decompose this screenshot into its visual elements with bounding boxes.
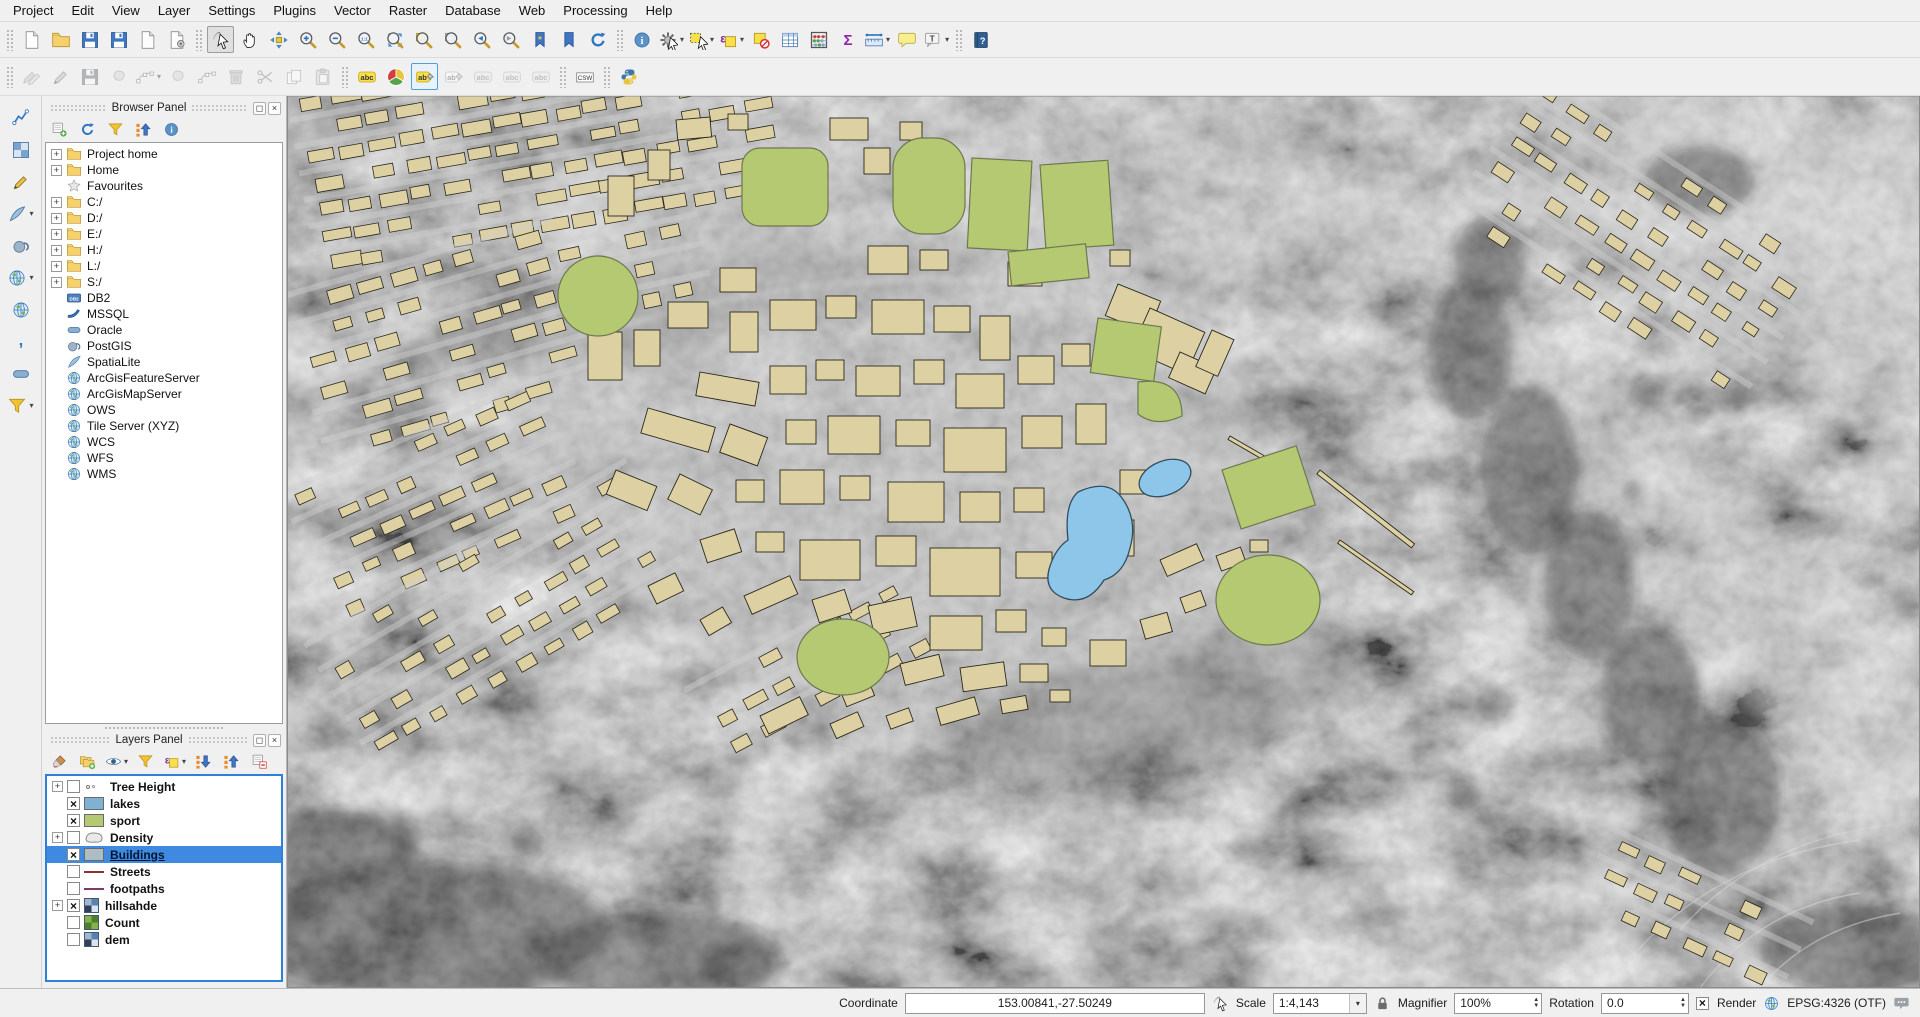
comma-icon <box>11 332 31 352</box>
menu-processing[interactable]: Processing <box>554 1 636 20</box>
floppy-icon <box>80 30 100 50</box>
layer-row-density[interactable]: +Density <box>47 829 281 846</box>
spin-arrows[interactable]: ▲▼ <box>1533 997 1541 1010</box>
layer-name-label: Buildings <box>110 848 165 862</box>
abcG-icon <box>502 67 522 87</box>
titlebar-texture <box>50 736 110 745</box>
dropdown-arrow-icon[interactable]: ▾ <box>886 35 890 44</box>
browser-item-e-[interactable]: +E:/ <box>46 226 282 242</box>
add-wms-layer-button[interactable]: ▾ <box>6 264 34 291</box>
abPin-icon <box>444 67 464 87</box>
float-panel-button[interactable]: ◻ <box>253 102 266 115</box>
expander-icon[interactable]: + <box>51 165 62 176</box>
blob-icon <box>109 67 129 87</box>
expander-icon[interactable]: + <box>51 261 62 272</box>
fill-swatch <box>84 797 104 810</box>
browser-item-h-[interactable]: +H:/ <box>46 242 282 258</box>
select-by-expression-button[interactable]: ▾ <box>717 26 745 53</box>
browser-item-label: ArcGisFeatureServer <box>87 371 200 385</box>
expander-icon[interactable]: + <box>51 197 62 208</box>
delete-selected-button[interactable] <box>222 63 249 90</box>
browser-item-c-[interactable]: +C:/ <box>46 194 282 210</box>
enable-properties-widget-button[interactable] <box>160 118 183 141</box>
line-swatch <box>84 871 104 873</box>
refresh-icon <box>588 30 608 50</box>
desel-icon <box>751 30 771 50</box>
textT-icon <box>923 30 943 50</box>
identify-features-button[interactable] <box>628 26 655 53</box>
copy-features-button[interactable] <box>280 63 307 90</box>
bookmark-icon <box>559 30 579 50</box>
move-icon <box>269 30 289 50</box>
folder-icon <box>66 194 82 210</box>
panel-splitter[interactable] <box>45 724 283 732</box>
new-bookmark-button[interactable] <box>526 26 553 53</box>
folder-icon <box>66 258 82 274</box>
toolbar-grip[interactable] <box>6 29 13 51</box>
pin-unpin-labels-button[interactable] <box>411 63 438 90</box>
menu-project[interactable]: Project <box>4 1 62 20</box>
bookmarknew-icon <box>530 30 550 50</box>
add-oracle-layer-button[interactable] <box>7 360 34 387</box>
measure-button[interactable]: ▾ <box>863 26 891 53</box>
star-icon <box>66 178 82 194</box>
refresh-browser-button[interactable] <box>76 118 99 141</box>
browser-item-label: H:/ <box>87 243 102 257</box>
dropdown-arrow-icon[interactable]: ▾ <box>182 757 186 766</box>
spatialite-icon <box>66 354 82 370</box>
browser-item-spatialite[interactable]: SpatiaLite <box>46 354 282 370</box>
postgis-icon <box>11 236 31 256</box>
scale-combobox[interactable]: 1:4,143 ▾ <box>1273 993 1367 1014</box>
collapse-all-layers-button[interactable] <box>220 750 243 773</box>
layers-panel: Layers Panel ◻ × ▾▾ +Tree Height×lakes×s… <box>45 732 283 982</box>
toolbar-grip[interactable] <box>341 66 348 88</box>
floppy-icon <box>80 67 100 87</box>
zoom-in-button[interactable] <box>294 26 321 53</box>
layer-name-label: footpaths <box>110 882 165 896</box>
magnifier-spinbox[interactable]: 100% ▲▼ <box>1454 993 1542 1014</box>
map-tips-button[interactable] <box>893 26 920 53</box>
browser-item-d-[interactable]: +D:/ <box>46 210 282 226</box>
expander-icon[interactable]: + <box>51 149 62 160</box>
spatialite-icon <box>7 204 27 224</box>
magnifier-label: Magnifier <box>1398 996 1447 1010</box>
folder-icon <box>66 226 82 242</box>
zoom-native-button[interactable] <box>352 26 379 53</box>
globe-icon <box>66 466 82 482</box>
globe-icon <box>66 386 82 402</box>
paste-icon <box>313 67 333 87</box>
menu-web[interactable]: Web <box>510 1 555 20</box>
help-icon <box>971 30 991 50</box>
layers-list: +Tree Height×lakes×sport+Density×Buildin… <box>45 774 283 982</box>
expand-all-button[interactable] <box>192 750 215 773</box>
layer-visibility-checkbox[interactable] <box>67 780 80 793</box>
rotation-label: Rotation <box>1549 996 1594 1010</box>
rotate-label-button[interactable] <box>498 63 525 90</box>
removelayer-icon <box>251 753 268 770</box>
highlight-pinned-labels-button[interactable] <box>440 63 467 90</box>
lock-scale-icon[interactable] <box>1374 995 1391 1012</box>
layer-visibility-checkbox[interactable]: × <box>67 814 80 827</box>
selrect-icon <box>688 30 708 50</box>
save-layer-edits-button[interactable] <box>76 63 103 90</box>
csw-icon <box>575 67 595 87</box>
treeup-icon <box>223 753 240 770</box>
zout-icon <box>327 30 347 50</box>
browser-item-label: DB2 <box>87 291 110 305</box>
layer-name-label: Tree Height <box>110 780 175 794</box>
refresh-icon <box>79 121 96 138</box>
titlebar-texture <box>50 104 107 113</box>
attrtable-icon <box>780 30 800 50</box>
main-area: ▾▾▾ Browser Panel ◻ × +Project home+Home… <box>0 96 1920 988</box>
zin-icon <box>298 30 318 50</box>
expander-icon[interactable]: + <box>51 245 62 256</box>
folder-icon <box>66 146 82 162</box>
new-shapefile-layer-button[interactable] <box>7 168 34 195</box>
toolbar-grip[interactable] <box>195 29 202 51</box>
dropdown-arrow-icon[interactable]: ▾ <box>945 35 949 44</box>
menu-help[interactable]: Help <box>637 1 682 20</box>
deselect-all-button[interactable] <box>747 26 774 53</box>
filter-legend-by-expression-button[interactable]: ▾ <box>162 750 187 773</box>
scale-dropdown-arrow[interactable]: ▾ <box>1349 994 1366 1013</box>
toolbar-grip[interactable] <box>6 66 13 88</box>
layers-panel-title: Layers Panel <box>115 734 182 746</box>
add-virtual-layer-button[interactable]: ▾ <box>6 392 34 419</box>
dropdown-arrow-icon[interactable]: ▾ <box>710 35 714 44</box>
render-checkbox-group[interactable]: × Render <box>1696 996 1756 1010</box>
add-raster-layer-button[interactable] <box>7 136 34 163</box>
browser-item-wfs[interactable]: WFS <box>46 450 282 466</box>
pan-map-button[interactable] <box>236 26 263 53</box>
new-print-composer-button[interactable] <box>134 26 161 53</box>
raster-swatch <box>84 915 99 930</box>
menu-bar: ProjectEditViewLayerSettingsPluginsVecto… <box>0 0 1920 22</box>
zoom-next-button[interactable] <box>497 26 524 53</box>
move-feature-button[interactable] <box>164 63 191 90</box>
globe-icon <box>66 418 82 434</box>
browser-item-wms[interactable]: WMS <box>46 466 282 482</box>
globe-icon <box>11 300 31 320</box>
pie-icon <box>386 67 406 87</box>
zoom-last-button[interactable] <box>468 26 495 53</box>
layer-name-label: hillsahde <box>105 899 157 913</box>
raster-swatch <box>84 932 99 947</box>
rotation-spinbox[interactable]: 0.0 ▲▼ <box>1601 993 1689 1014</box>
zsel-icon <box>414 30 434 50</box>
layer-visibility-checkbox[interactable] <box>67 916 80 929</box>
toolbar-grip[interactable] <box>955 29 962 51</box>
node-icon <box>135 67 155 87</box>
info-icon <box>632 30 652 50</box>
browser-item-s-[interactable]: +S:/ <box>46 274 282 290</box>
layer-visibility-checkbox[interactable] <box>67 882 80 895</box>
crs-status: EPSG:4326 (OTF) <box>1787 996 1886 1010</box>
browser-item-favourites[interactable]: Favourites <box>46 178 282 194</box>
layer-row-sport[interactable]: ×sport <box>47 812 281 829</box>
brush-icon <box>51 753 68 770</box>
oracle-icon <box>66 322 82 338</box>
browser-item-label: Home <box>87 163 119 177</box>
zoom-full-button[interactable] <box>381 26 408 53</box>
paste-features-button[interactable] <box>309 63 336 90</box>
blob-icon <box>168 67 188 87</box>
coordinate-input[interactable]: 153.00841,-27.50249 <box>905 993 1205 1014</box>
browser-item-project-home[interactable]: +Project home <box>46 146 282 162</box>
layer-visibility-checkbox[interactable]: × <box>67 797 80 810</box>
dropdown-arrow-icon[interactable]: ▾ <box>124 757 128 766</box>
add-spatialite-layer-button[interactable]: ▾ <box>6 200 34 227</box>
expander-icon[interactable]: + <box>51 213 62 224</box>
info-icon <box>163 121 180 138</box>
browser-item-label: WMS <box>87 467 116 481</box>
marker-swatch <box>84 780 104 793</box>
touch-zoom-and-pan-button[interactable] <box>207 26 234 53</box>
gear-icon <box>658 30 678 50</box>
globe-icon <box>66 370 82 386</box>
layer-visibility-checkbox[interactable] <box>67 933 80 946</box>
layer-visibility-checkbox[interactable] <box>67 865 80 878</box>
menu-vector[interactable]: Vector <box>325 1 380 20</box>
magnifier-value: 100% <box>1460 996 1491 1010</box>
abcG-icon <box>473 67 493 87</box>
refresh-map-button[interactable] <box>584 26 611 53</box>
funnel-icon <box>137 753 154 770</box>
new-project-button[interactable] <box>18 26 45 53</box>
manage-map-themes-button[interactable]: ▾ <box>104 750 129 773</box>
python-icon <box>619 67 639 87</box>
python-console-button[interactable] <box>615 63 642 90</box>
messages-icon[interactable] <box>1893 995 1910 1012</box>
selexpr-icon <box>163 753 180 770</box>
treedown-icon <box>195 753 212 770</box>
dropdown-arrow-icon[interactable]: ▾ <box>740 35 744 44</box>
help-contents-button[interactable] <box>967 26 994 53</box>
digitizing-label-toolbar: ▾ <box>0 58 1920 96</box>
move-label-button[interactable] <box>469 63 496 90</box>
browser-item-label: Tile Server (XYZ) <box>87 419 179 433</box>
toggle-editing-button[interactable] <box>47 63 74 90</box>
dropdown-arrow-icon[interactable]: ▾ <box>29 209 33 218</box>
change-label-button[interactable] <box>527 63 554 90</box>
dock-panels: Browser Panel ◻ × +Project home+HomeFavo… <box>42 96 287 988</box>
close-panel-button[interactable]: × <box>268 102 281 115</box>
layer-name-label: lakes <box>110 797 140 811</box>
toolbar-grip[interactable] <box>603 66 610 88</box>
close-panel-button[interactable]: × <box>268 734 281 747</box>
statistical-summary-button[interactable] <box>834 26 861 53</box>
dropdown-arrow-icon[interactable]: ▾ <box>29 273 33 282</box>
layer-row-buildings[interactable]: ×Buildings <box>47 846 281 863</box>
layer-row-hillsahde[interactable]: +×hillsahde <box>47 897 281 914</box>
zoom-to-layer-button[interactable] <box>439 26 466 53</box>
browser-item-label: D:/ <box>87 211 102 225</box>
layer-row-dem[interactable]: dem <box>47 931 281 948</box>
menu-settings[interactable]: Settings <box>199 1 264 20</box>
filegear-icon <box>167 30 187 50</box>
browser-item-tile-server-xyz-[interactable]: Tile Server (XYZ) <box>46 418 282 434</box>
show-bookmarks-button[interactable] <box>555 26 582 53</box>
float-panel-button[interactable]: ◻ <box>253 734 266 747</box>
open-attribute-table-button[interactable] <box>776 26 803 53</box>
expander-icon[interactable]: + <box>52 900 63 911</box>
add-group-button[interactable] <box>76 750 99 773</box>
layer-row-streets[interactable]: Streets <box>47 863 281 880</box>
layer-visibility-checkbox[interactable] <box>67 831 80 844</box>
postgis-icon <box>66 338 82 354</box>
db2-icon <box>66 290 82 306</box>
zoom-to-selection-button[interactable] <box>410 26 437 53</box>
layer-row-lakes[interactable]: ×lakes <box>47 795 281 812</box>
browser-item-arcgisfeatureserver[interactable]: ArcGisFeatureServer <box>46 370 282 386</box>
funnel-icon <box>7 396 27 416</box>
browser-item-ows[interactable]: OWS <box>46 402 282 418</box>
browser-item-db2[interactable]: DB2 <box>46 290 282 306</box>
layer-labeling-options-button[interactable] <box>353 63 380 90</box>
menu-database[interactable]: Database <box>436 1 510 20</box>
render-checkbox[interactable]: × <box>1696 997 1709 1010</box>
dropdown-arrow-icon[interactable]: ▾ <box>680 35 684 44</box>
render-label: Render <box>1717 996 1756 1010</box>
add-wfs-layer-button[interactable] <box>7 296 34 323</box>
layer-row-footpaths[interactable]: footpaths <box>47 880 281 897</box>
layer-row-tree-height[interactable]: +Tree Height <box>47 778 281 795</box>
browser-item-label: C:/ <box>87 195 102 209</box>
menu-layer[interactable]: Layer <box>149 1 200 20</box>
folder-icon <box>51 30 71 50</box>
layer-name-label: Density <box>110 831 153 845</box>
field-calculator-button[interactable] <box>805 26 832 53</box>
menu-view[interactable]: View <box>103 1 149 20</box>
layer-visibility-checkbox[interactable]: × <box>67 848 80 861</box>
layer-diagram-options-button[interactable] <box>382 63 409 90</box>
pan-to-selection-button[interactable] <box>265 26 292 53</box>
file-icon <box>138 30 158 50</box>
folder-icon <box>66 242 82 258</box>
composer-manager-button[interactable] <box>163 26 190 53</box>
coordinate-value: 153.00841,-27.50249 <box>998 996 1112 1010</box>
menu-edit[interactable]: Edit <box>62 1 102 20</box>
trash-icon <box>226 67 246 87</box>
remove-layer-group-button[interactable] <box>248 750 271 773</box>
manage-layers-toolbar: ▾▾▾ <box>0 96 42 988</box>
select-features-button[interactable]: ▾ <box>687 26 715 53</box>
vec-icon <box>11 108 31 128</box>
add-postgis-layer-button[interactable] <box>7 232 34 259</box>
browser-item-label: MSSQL <box>87 307 129 321</box>
folder-icon <box>66 210 82 226</box>
browser-item-home[interactable]: +Home <box>46 162 282 178</box>
browser-item-label: Project home <box>87 147 158 161</box>
dropdown-arrow-icon[interactable]: ▾ <box>157 72 161 81</box>
run-feature-action-button[interactable]: ▾ <box>657 26 685 53</box>
expander-icon[interactable]: + <box>52 832 63 843</box>
browser-panel-toolbar <box>45 116 283 142</box>
scale-label: Scale <box>1236 996 1266 1010</box>
browser-item-oracle[interactable]: Oracle <box>46 322 282 338</box>
browser-item-label: WFS <box>87 451 114 465</box>
zoom-out-button[interactable] <box>323 26 350 53</box>
metasearch-csw-button[interactable] <box>571 63 598 90</box>
browser-item-mssql[interactable]: MSSQL <box>46 306 282 322</box>
expander-icon[interactable]: + <box>51 229 62 240</box>
map-canvas[interactable] <box>287 96 1920 988</box>
collapse-all-button[interactable] <box>132 118 155 141</box>
zlast-icon <box>472 30 492 50</box>
add-vector-layer-button[interactable] <box>7 104 34 131</box>
map-render <box>287 96 1920 988</box>
toolbar-grip[interactable] <box>616 29 623 51</box>
text-annotation-button[interactable]: ▾ <box>922 26 950 53</box>
touch-icon <box>211 30 231 50</box>
browser-item-label: ArcGisMapServer <box>87 387 182 401</box>
coordinate-label: Coordinate <box>839 996 898 1010</box>
cut-features-button[interactable] <box>251 63 278 90</box>
treeup-icon <box>135 121 152 138</box>
rotate-feature-button[interactable] <box>193 63 220 90</box>
browser-item-wcs[interactable]: WCS <box>46 434 282 450</box>
layer-visibility-checkbox[interactable]: × <box>67 899 80 912</box>
hand-icon <box>240 30 260 50</box>
browser-item-label: PostGIS <box>87 339 132 353</box>
browser-item-label: L:/ <box>87 259 100 273</box>
open-project-button[interactable] <box>47 26 74 53</box>
browser-item-arcgismapserver[interactable]: ArcGisMapServer <box>46 386 282 402</box>
polygon-outline-swatch <box>84 831 104 844</box>
browser-item-label: Oracle <box>87 323 122 337</box>
filter-legend-button[interactable] <box>134 750 157 773</box>
add-feature-button[interactable] <box>105 63 132 90</box>
browser-item-label: SpatiaLite <box>87 355 140 369</box>
save-project-as-button[interactable] <box>105 26 132 53</box>
abcG-icon <box>531 67 551 87</box>
add-selected-layers-button[interactable] <box>48 118 71 141</box>
rotation-value: 0.0 <box>1607 996 1624 1010</box>
zfull-icon <box>385 30 405 50</box>
filter-browser-button[interactable] <box>104 118 127 141</box>
browser-item-label: S:/ <box>87 275 102 289</box>
browser-item-postgis[interactable]: PostGIS <box>46 338 282 354</box>
status-bar: Coordinate 153.00841,-27.50249 Scale 1:4… <box>0 988 1920 1017</box>
globe-icon <box>66 450 82 466</box>
node-tool-button[interactable]: ▾ <box>134 63 162 90</box>
current-edits-button[interactable] <box>18 63 45 90</box>
mouse-extent-icon[interactable] <box>1212 995 1229 1012</box>
menu-plugins[interactable]: Plugins <box>264 1 325 20</box>
expander-icon[interactable]: + <box>51 277 62 288</box>
oracle-icon <box>11 364 31 384</box>
add-delimited-text-layer-button[interactable] <box>7 328 34 355</box>
crs-globe-icon[interactable] <box>1763 995 1780 1012</box>
layers-panel-titlebar: Layers Panel ◻ × <box>45 732 283 748</box>
menu-raster[interactable]: Raster <box>380 1 436 20</box>
dropdown-arrow-icon[interactable]: ▾ <box>29 401 33 410</box>
open-layer-styling-dock-button[interactable] <box>48 750 71 773</box>
node-icon <box>197 67 217 87</box>
scale-value: 1:4,143 <box>1279 996 1319 1010</box>
spin-arrows[interactable]: ▲▼ <box>1680 997 1688 1010</box>
browser-item-l-[interactable]: +L:/ <box>46 258 282 274</box>
expander-icon[interactable]: + <box>52 781 63 792</box>
toolbar-grip[interactable] <box>559 66 566 88</box>
layer-row-count[interactable]: Count <box>47 914 281 931</box>
line-swatch <box>84 888 104 890</box>
browser-item-label: Favourites <box>87 179 143 193</box>
save-project-button[interactable] <box>76 26 103 53</box>
